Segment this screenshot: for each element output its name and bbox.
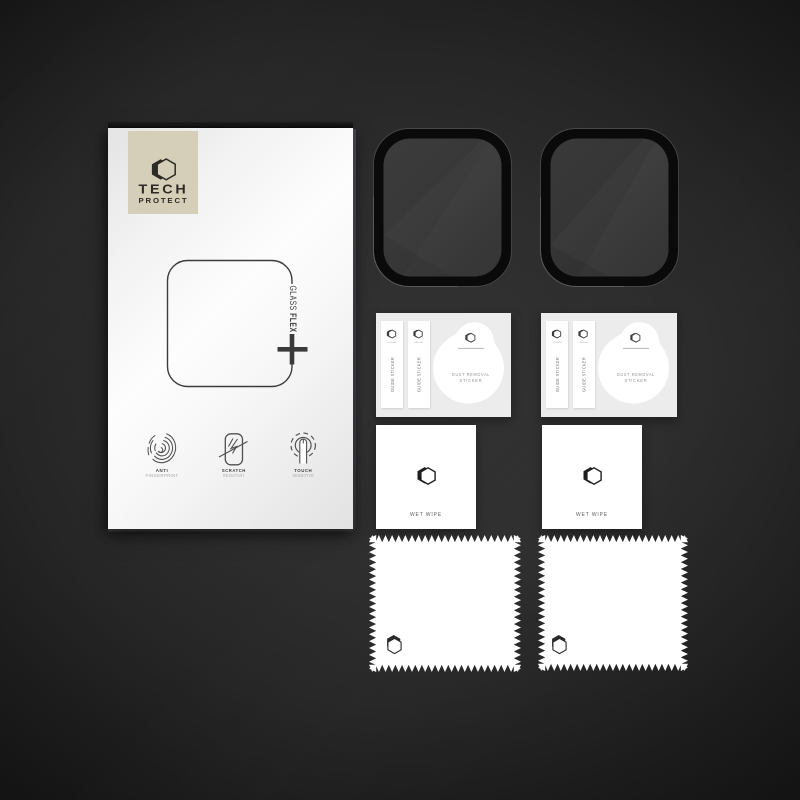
svg-text:WET WIPE: WET WIPE (410, 512, 442, 518)
svg-text:GUIDE STICKER: GUIDE STICKER (416, 357, 421, 392)
svg-text:SENSITIVE: SENSITIVE (292, 473, 314, 478)
svg-text:GUIDE STICKER: GUIDE STICKER (555, 357, 560, 392)
svg-text:GLASS FLEX: GLASS FLEX (288, 286, 298, 333)
svg-text:WET WIPE: WET WIPE (576, 512, 608, 518)
svg-text:FINGERPRINT: FINGERPRINT (146, 473, 179, 478)
svg-text:DUST REMOVAL: DUST REMOVAL (617, 372, 655, 378)
svg-text:STICKER: STICKER (460, 378, 483, 384)
svg-text:DUST REMOVAL: DUST REMOVAL (452, 372, 490, 378)
svg-text:STICKER: STICKER (625, 378, 648, 384)
svg-text:GUIDE STICKER: GUIDE STICKER (581, 357, 586, 392)
svg-text:GUIDE STICKER: GUIDE STICKER (390, 357, 395, 392)
svg-text:RESISTANT: RESISTANT (223, 473, 245, 478)
